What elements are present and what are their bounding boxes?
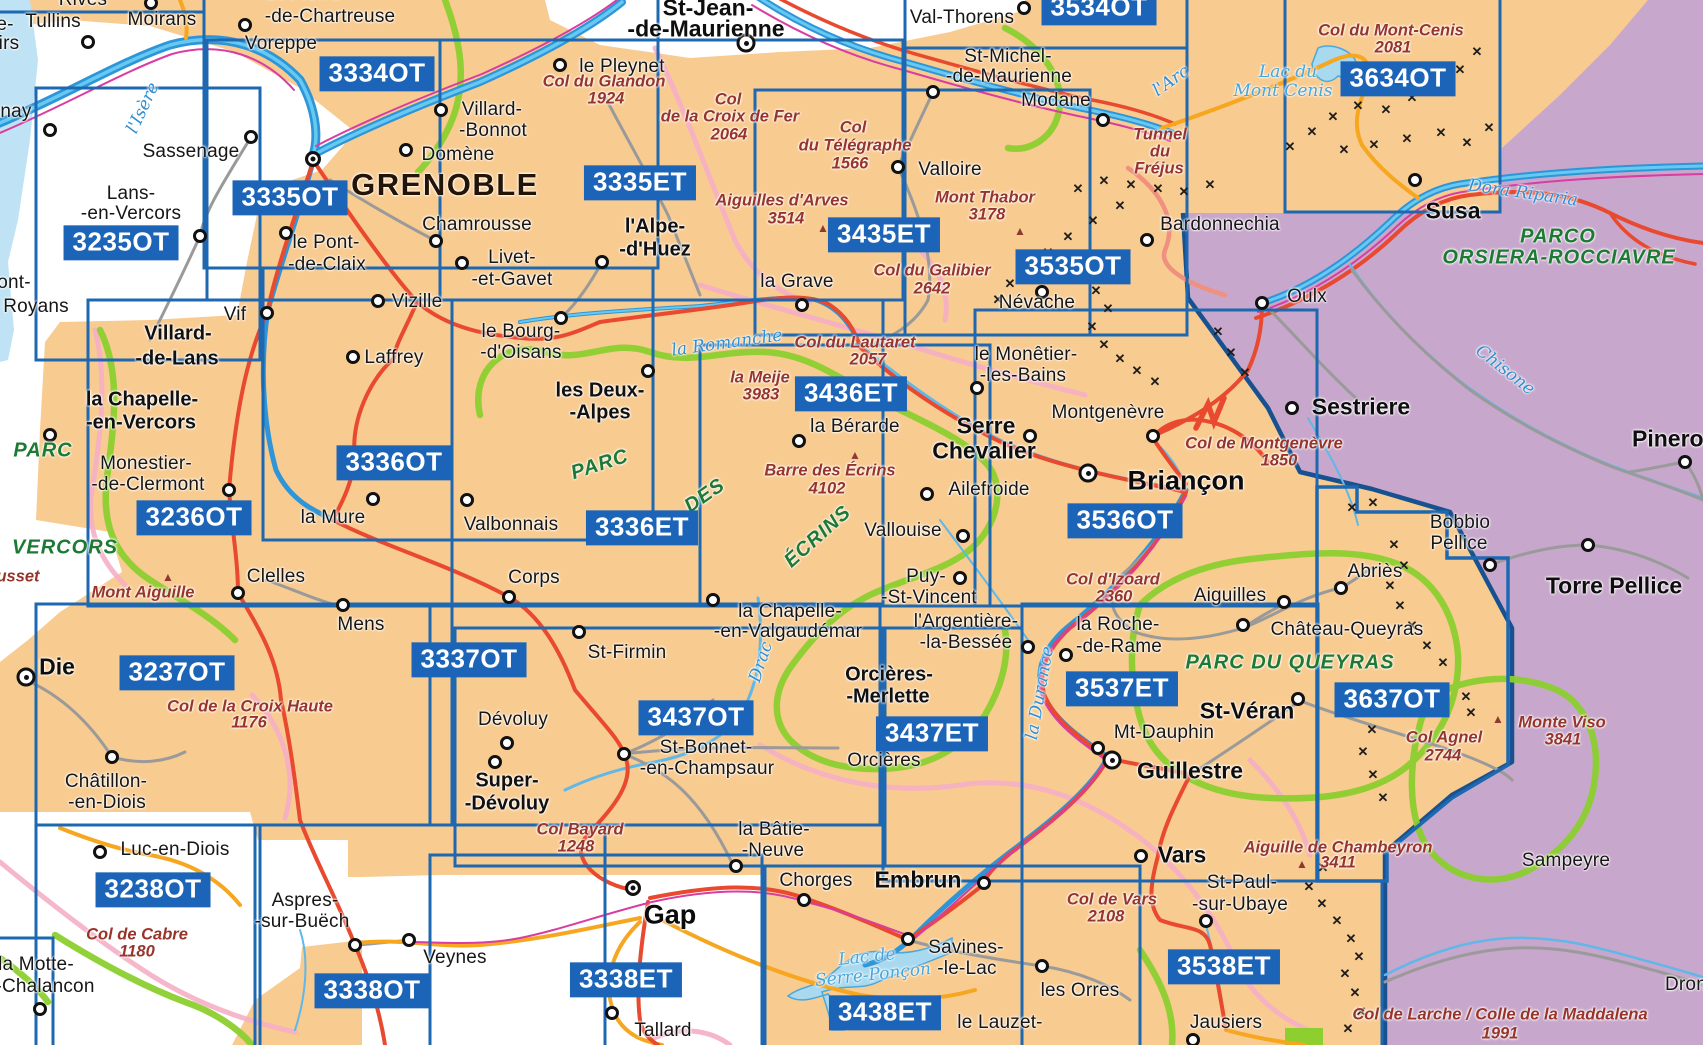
border-cross-icon: ✕	[1350, 985, 1361, 1001]
border-cross-icon: ✕	[1340, 966, 1351, 982]
peak-icon: ▲	[849, 448, 861, 462]
place-label: -d'Huez	[619, 239, 690, 262]
place-label: la Bérarde	[810, 416, 900, 438]
place-label: -les-Bains	[980, 365, 1066, 387]
place-label: Die	[39, 654, 75, 681]
town-marker	[193, 229, 207, 243]
border-cross-icon: ✕	[1484, 120, 1495, 136]
town-marker	[553, 58, 567, 72]
place-label: la Motte-	[0, 954, 74, 976]
town-marker	[434, 103, 448, 117]
town-marker	[1091, 741, 1105, 755]
peak-icon: ▲	[1492, 712, 1504, 726]
pass-label: 1176	[231, 714, 266, 733]
sheet-label-3334ot[interactable]: 3334OT	[320, 56, 435, 91]
place-label: St-Véran	[1200, 698, 1295, 725]
sheet-label-3238ot[interactable]: 3238OT	[96, 872, 211, 907]
town-marker	[1678, 455, 1692, 469]
sheet-label-3436et[interactable]: 3436ET	[795, 376, 907, 411]
place-label: la Grave	[760, 271, 833, 293]
border-cross-icon: ✕	[1103, 301, 1114, 317]
town-marker	[920, 487, 934, 501]
place-label: St-Bonnet-	[660, 737, 753, 759]
border-cross-icon: ✕	[1285, 139, 1296, 155]
town-marker	[238, 18, 252, 32]
sheet-label-3438et[interactable]: 3438ET	[829, 995, 941, 1030]
border-cross-icon: ✕	[1472, 44, 1483, 60]
place-label: -de-Rame	[1076, 636, 1162, 658]
place-label: Sestriere	[1312, 394, 1410, 421]
place-label: Vif	[224, 304, 246, 326]
pass-label: usset	[0, 568, 40, 587]
city-marker	[1079, 464, 1098, 483]
border-cross-icon: ✕	[1461, 689, 1472, 705]
pass-label: Col Agnel	[1406, 729, 1482, 748]
place-label: Chorges	[779, 870, 852, 892]
town-marker	[348, 938, 362, 952]
pass-label: 2057	[850, 351, 887, 370]
town-marker	[595, 255, 609, 269]
sheet-label-3236ot[interactable]: 3236OT	[137, 500, 252, 535]
sheet-label-3536ot[interactable]: 3536OT	[1068, 503, 1183, 538]
border-cross-icon: ✕	[1367, 722, 1378, 738]
place-label: Laffrey	[364, 347, 423, 369]
place-label: le Lauzet-	[957, 1012, 1042, 1034]
place-label: le Pont-	[292, 232, 359, 254]
peak-icon: ▲	[1014, 224, 1026, 238]
pass-label: 1924	[588, 90, 625, 109]
peak-icon: ▲	[162, 570, 174, 584]
place-label: -de-Maurienne	[627, 16, 784, 43]
border-cross-icon: ✕	[1347, 500, 1358, 516]
map-canvas[interactable]: 3334OT3335OT3235OT3335ET3534OT3634OT3435…	[0, 0, 1703, 1045]
pass-label: 4102	[809, 480, 846, 499]
place-label: -d'Oisans	[480, 342, 561, 364]
border-cross-icon: ✕	[1150, 374, 1161, 390]
place-label: Lans-	[107, 183, 156, 205]
place-label: Dévoluy	[478, 709, 548, 731]
pass-label: 1991	[1482, 1025, 1519, 1044]
water-label: Mont Cenis	[1233, 81, 1332, 101]
town-marker	[399, 143, 413, 157]
border-cross-icon: ✕	[1132, 363, 1143, 379]
border-cross-icon: ✕	[1073, 181, 1084, 197]
place-label: -de-Clermont	[91, 474, 204, 496]
pass-label: 2642	[914, 280, 951, 299]
place-label: -Alpes	[569, 402, 630, 425]
town-marker	[502, 590, 516, 604]
place-label: la Roche-	[1076, 614, 1159, 636]
prefecture-marker	[305, 151, 321, 167]
place-label: l'Argentière-	[914, 611, 1018, 633]
place-label: Aspres-	[272, 890, 339, 912]
town-marker	[93, 845, 107, 859]
town-marker	[488, 755, 502, 769]
border-cross-icon: ✕	[1455, 62, 1466, 78]
place-label: irs	[0, 33, 19, 55]
border-cross-icon: ✕	[1462, 135, 1473, 151]
place-label: Moirans	[128, 9, 197, 31]
place-label: -de-Claix	[288, 254, 366, 276]
town-marker	[1581, 538, 1595, 552]
place-label: Rives	[59, 0, 108, 11]
place-label: -Bonnot	[459, 120, 527, 142]
sheet-label-3637ot[interactable]: 3637OT	[1335, 682, 1450, 717]
place-label: Corps	[508, 567, 560, 589]
place-label: le Bourg-	[482, 321, 561, 343]
place-label: l'Alpe-	[625, 216, 685, 239]
place-label: Villard-	[462, 99, 522, 121]
place-label: Tallard	[634, 1020, 691, 1042]
place-label: Bardonnechia	[1160, 214, 1280, 236]
place-label: Sassenage	[143, 141, 240, 163]
border-cross-icon: ✕	[1063, 229, 1074, 245]
park-label: PARC	[13, 440, 72, 463]
town-marker	[1277, 595, 1291, 609]
town-marker	[1017, 1, 1031, 15]
border-cross-icon: ✕	[1307, 124, 1318, 140]
place-label: -en-Champsaur	[640, 758, 775, 780]
border-cross-icon: ✕	[1395, 598, 1406, 614]
place-label: Chamrousse	[422, 214, 532, 236]
place-label: Orcières	[847, 750, 920, 772]
place-label: Villard-	[144, 323, 211, 346]
sheet-label-3437et[interactable]: 3437ET	[876, 716, 988, 751]
place-label: Briançon	[1127, 466, 1244, 497]
border-cross-icon: ✕	[1381, 102, 1392, 118]
town-marker	[1236, 618, 1250, 632]
border-cross-icon: ✕	[1115, 351, 1126, 367]
border-cross-icon: ✕	[1466, 705, 1477, 721]
town-marker	[572, 625, 586, 639]
place-label: -la-Bessée	[920, 632, 1013, 654]
park-label: ORSIERA-ROCCIAVRE	[1442, 247, 1675, 270]
border-cross-icon: ✕	[1115, 198, 1126, 214]
town-marker	[33, 1002, 47, 1016]
town-marker	[1408, 173, 1422, 187]
town-marker	[1255, 296, 1269, 310]
place-label: Château-Queyras	[1271, 619, 1424, 641]
place-label: Oulx	[1287, 286, 1327, 308]
place-label: Puy-	[906, 566, 946, 588]
place-label: -Neuve	[742, 840, 804, 862]
sheet-label-3537et[interactable]: 3537ET	[1066, 671, 1178, 706]
pass-label: 2108	[1088, 908, 1125, 927]
town-marker	[279, 226, 293, 240]
place-label: Bobbio	[1430, 512, 1490, 534]
place-label: Névache	[999, 292, 1075, 314]
place-label: Orcières-	[845, 664, 933, 687]
pass-label: 2744	[1425, 747, 1462, 766]
place-label: Vizille	[392, 291, 443, 313]
town-marker	[1140, 233, 1154, 247]
border-cross-icon: ✕	[1213, 324, 1224, 340]
town-marker	[1285, 401, 1299, 415]
place-label: Ailefroide	[948, 479, 1029, 501]
border-cross-icon: ✕	[1317, 896, 1328, 912]
town-marker	[455, 256, 469, 270]
town-marker	[1186, 1033, 1200, 1045]
town-marker	[956, 529, 970, 543]
sheet-label-3338et[interactable]: 3338ET	[570, 962, 682, 997]
place-label: Modane	[1021, 90, 1091, 112]
pass-label: 2081	[1375, 39, 1412, 58]
place-label: Sampeyre	[1522, 850, 1610, 872]
prefecture-marker	[625, 880, 641, 896]
border-cross-icon: ✕	[1091, 283, 1102, 299]
place-label: -et-Gavet	[472, 269, 553, 291]
place-label: Abriès	[1347, 561, 1402, 583]
border-cross-icon: ✕	[1389, 537, 1400, 553]
place-label: -de-Chartreuse	[265, 6, 396, 28]
place-label: Torre Pellice	[1546, 573, 1682, 600]
place-label: Mt-Dauphin	[1114, 722, 1214, 744]
border-cross-icon: ✕	[1369, 137, 1380, 153]
town-marker	[429, 234, 443, 248]
town-marker	[1134, 849, 1148, 863]
town-marker	[460, 493, 474, 507]
place-label: la Bâtie-	[738, 819, 810, 841]
place-label: -le-Lac	[937, 958, 996, 980]
pass-label: 3411	[1320, 854, 1355, 873]
place-label: les Deux-	[556, 380, 645, 403]
place-label: Mens	[337, 614, 384, 636]
place-label: Dronero	[1665, 974, 1703, 996]
town-marker	[402, 933, 416, 947]
town-marker	[105, 750, 119, 764]
town-marker	[891, 160, 905, 174]
town-marker	[1021, 640, 1035, 654]
town-marker	[1483, 558, 1497, 572]
border-cross-icon: ✕	[1099, 337, 1110, 353]
place-label: Embrun	[875, 867, 962, 894]
place-label: St-Firmin	[588, 642, 667, 664]
place-label: les Orres	[1041, 980, 1120, 1002]
pass-label: Col de Larche / Colle de la Maddalena	[1352, 1006, 1647, 1025]
place-label: St-Pierre	[265, 0, 342, 5]
town-marker	[260, 306, 274, 320]
place-label: nay	[0, 101, 31, 123]
place-label: Vars	[1158, 842, 1207, 869]
border-cross-icon: ✕	[1368, 767, 1379, 783]
place-label: Susa	[1426, 198, 1481, 225]
place-label: -en-Valgaudémar	[714, 621, 862, 643]
place-label: Gap	[644, 900, 697, 931]
place-label: Valbonnais	[464, 514, 559, 536]
place-label: Clelles	[247, 566, 305, 588]
place-label: -en-Diois	[68, 792, 146, 814]
sheet-label-3634ot[interactable]: 3634OT	[1341, 61, 1456, 96]
border-cross-icon: ✕	[1346, 931, 1357, 947]
sheet-label-3538et[interactable]: 3538ET	[1168, 949, 1280, 984]
place-label: la Mure	[301, 507, 366, 529]
town-marker	[901, 932, 915, 946]
town-marker	[371, 294, 385, 308]
park-label: PARC DU QUEYRAS	[1185, 652, 1394, 675]
place-label: Valloire	[918, 159, 982, 181]
place-label: Guillestre	[1137, 758, 1243, 785]
town-marker	[1096, 113, 1110, 127]
place-label: Pinerolo	[1632, 426, 1703, 453]
sheet-label-3335ot[interactable]: 3335OT	[233, 180, 348, 215]
place-label: Livet-	[488, 247, 536, 269]
pass-label: 1850	[1261, 452, 1298, 471]
park-label: PARCO	[1520, 226, 1596, 249]
border-cross-icon: ✕	[1304, 879, 1315, 895]
town-marker	[336, 598, 350, 612]
border-cross-icon: ✕	[1088, 213, 1099, 229]
border-cross-icon: ✕	[1339, 142, 1350, 158]
place-label: le Monêtier-	[975, 344, 1078, 366]
pass-label: 1180	[119, 943, 154, 962]
place-label: -de-Maurienne	[946, 66, 1072, 88]
border-cross-icon: ✕	[1099, 173, 1110, 189]
sheet-label-3534ot[interactable]: 3534OT	[1042, 0, 1157, 26]
place-label: Domène	[421, 144, 494, 166]
pass-label: de la Croix de Fer	[661, 108, 799, 127]
place-label: -St-Vincent	[881, 587, 977, 609]
border-cross-icon: ✕	[1179, 184, 1190, 200]
border-cross-icon: ✕	[1126, 177, 1137, 193]
pass-label: Col	[840, 119, 867, 138]
border-cross-icon: ✕	[1328, 109, 1339, 125]
place-label: Pellice	[1430, 533, 1487, 555]
town-marker	[605, 1006, 619, 1020]
sheet-label-3435et[interactable]: 3435ET	[828, 217, 940, 252]
town-marker	[792, 434, 806, 448]
border-cross-icon: ✕	[1438, 655, 1449, 671]
place-label: la Chapelle-	[86, 389, 198, 412]
sheet-label-3237ot[interactable]: 3237OT	[120, 655, 235, 690]
pass-label: 3983	[743, 386, 780, 405]
sheet-label-3336et[interactable]: 3336ET	[586, 510, 698, 545]
sheet-label-3235ot[interactable]: 3235OT	[64, 225, 179, 260]
place-label: -Dévoluy	[465, 793, 549, 816]
place-label: -Merlette	[846, 686, 929, 709]
place-label: Châtillon-	[65, 771, 147, 793]
town-marker	[222, 483, 236, 497]
town-marker	[1146, 429, 1160, 443]
place-label: Savines-	[928, 937, 1004, 959]
place-label: Vallouise	[864, 520, 942, 542]
place-label: Serre	[957, 413, 1016, 440]
border-cross-icon: ✕	[1005, 276, 1016, 292]
border-cross-icon: ✕	[1358, 744, 1369, 760]
border-cross-icon: ✕	[1332, 913, 1343, 929]
place-label: Royans	[3, 296, 69, 318]
peak-icon: ▲	[1296, 857, 1308, 871]
town-marker	[346, 350, 360, 364]
place-label: Aiguilles	[1194, 585, 1267, 607]
town-marker	[797, 893, 811, 907]
water-label: Lac du	[1259, 62, 1317, 82]
border-cross-icon: ✕	[1240, 365, 1251, 381]
town-marker	[43, 123, 57, 137]
place-label: Luc-en-Diois	[120, 839, 229, 861]
town-marker	[231, 586, 245, 600]
border-cross-icon: ✕	[1436, 125, 1447, 141]
place-label: Veynes	[423, 947, 487, 969]
pass-label: 3514	[768, 210, 805, 229]
place-label: Super-	[475, 770, 538, 793]
place-label: -sur-Ubaye	[1192, 894, 1288, 916]
town-marker	[953, 571, 967, 585]
pass-label: Mont Aiguille	[92, 584, 195, 603]
park-label: VERCORS	[12, 537, 118, 560]
city-marker	[17, 668, 36, 687]
city-marker	[1103, 751, 1122, 770]
place-label: St-Michel-	[964, 46, 1052, 68]
place-label: -de-Lans	[135, 348, 218, 371]
place-label: Monestier-	[100, 453, 192, 475]
pass-label: Fréjus	[1134, 160, 1184, 179]
pass-label: Barre des Écrins	[764, 462, 895, 481]
sheet-label-3535ot[interactable]: 3535OT	[1016, 249, 1131, 284]
place-label: Voreppe	[245, 33, 317, 55]
town-marker	[641, 364, 655, 378]
pass-label: Aiguilles d'Arves	[715, 192, 848, 211]
pass-label: Col du Galibier	[873, 262, 990, 281]
pass-label: 3178	[969, 206, 1006, 225]
place-label: -en-Vercors	[81, 203, 181, 225]
sheet-label-3338ot[interactable]: 3338OT	[315, 973, 430, 1008]
border-cross-icon: ✕	[1205, 177, 1216, 193]
pass-label: 1566	[832, 155, 869, 174]
place-label: Tullins	[25, 11, 81, 33]
border-cross-icon: ✕	[1087, 319, 1098, 335]
border-cross-icon: ✕	[1153, 181, 1164, 197]
place-label: -en-Vercors	[86, 412, 196, 435]
pass-label: du Télégraphe	[799, 137, 912, 156]
town-marker	[977, 876, 991, 890]
border-cross-icon: ✕	[1354, 949, 1365, 965]
pass-label: 3841	[1545, 731, 1582, 750]
sheet-label-3337ot[interactable]: 3337OT	[412, 642, 527, 677]
place-label: Val-Thorens	[910, 7, 1014, 29]
pass-label: 2360	[1096, 588, 1133, 607]
sheet-label-3437ot[interactable]: 3437OT	[639, 700, 754, 735]
town-marker	[81, 35, 95, 49]
town-marker	[706, 593, 720, 607]
town-marker	[1199, 914, 1213, 928]
place-label: la Chapelle-	[738, 601, 842, 623]
town-marker	[795, 298, 809, 312]
place-label: ont-	[0, 272, 31, 294]
place-label: -sur-Buëch	[255, 911, 350, 933]
town-marker	[617, 747, 631, 761]
town-marker	[366, 492, 380, 506]
pass-label: 1248	[558, 838, 595, 857]
town-marker	[244, 130, 258, 144]
place-label: GRENOBLE	[351, 167, 539, 203]
place-label: St-Paul-	[1207, 872, 1277, 894]
place-label: Chevalier	[932, 438, 1036, 465]
border-cross-icon: ✕	[1368, 495, 1379, 511]
border-cross-icon: ✕	[1226, 345, 1237, 361]
border-cross-icon: ✕	[1353, 98, 1364, 114]
town-marker	[1059, 648, 1073, 662]
place-label: Montgenèvre	[1051, 402, 1164, 424]
town-marker	[926, 85, 940, 99]
town-marker	[1035, 959, 1049, 973]
sheet-label-3335et[interactable]: 3335ET	[584, 165, 696, 200]
sheet-label-3336ot[interactable]: 3336OT	[337, 445, 452, 480]
place-label: Jausiers	[1190, 1012, 1262, 1034]
town-marker	[1334, 581, 1348, 595]
pass-label: 2064	[711, 126, 748, 145]
town-marker	[500, 736, 514, 750]
place-label: -Chalancon	[0, 976, 95, 998]
